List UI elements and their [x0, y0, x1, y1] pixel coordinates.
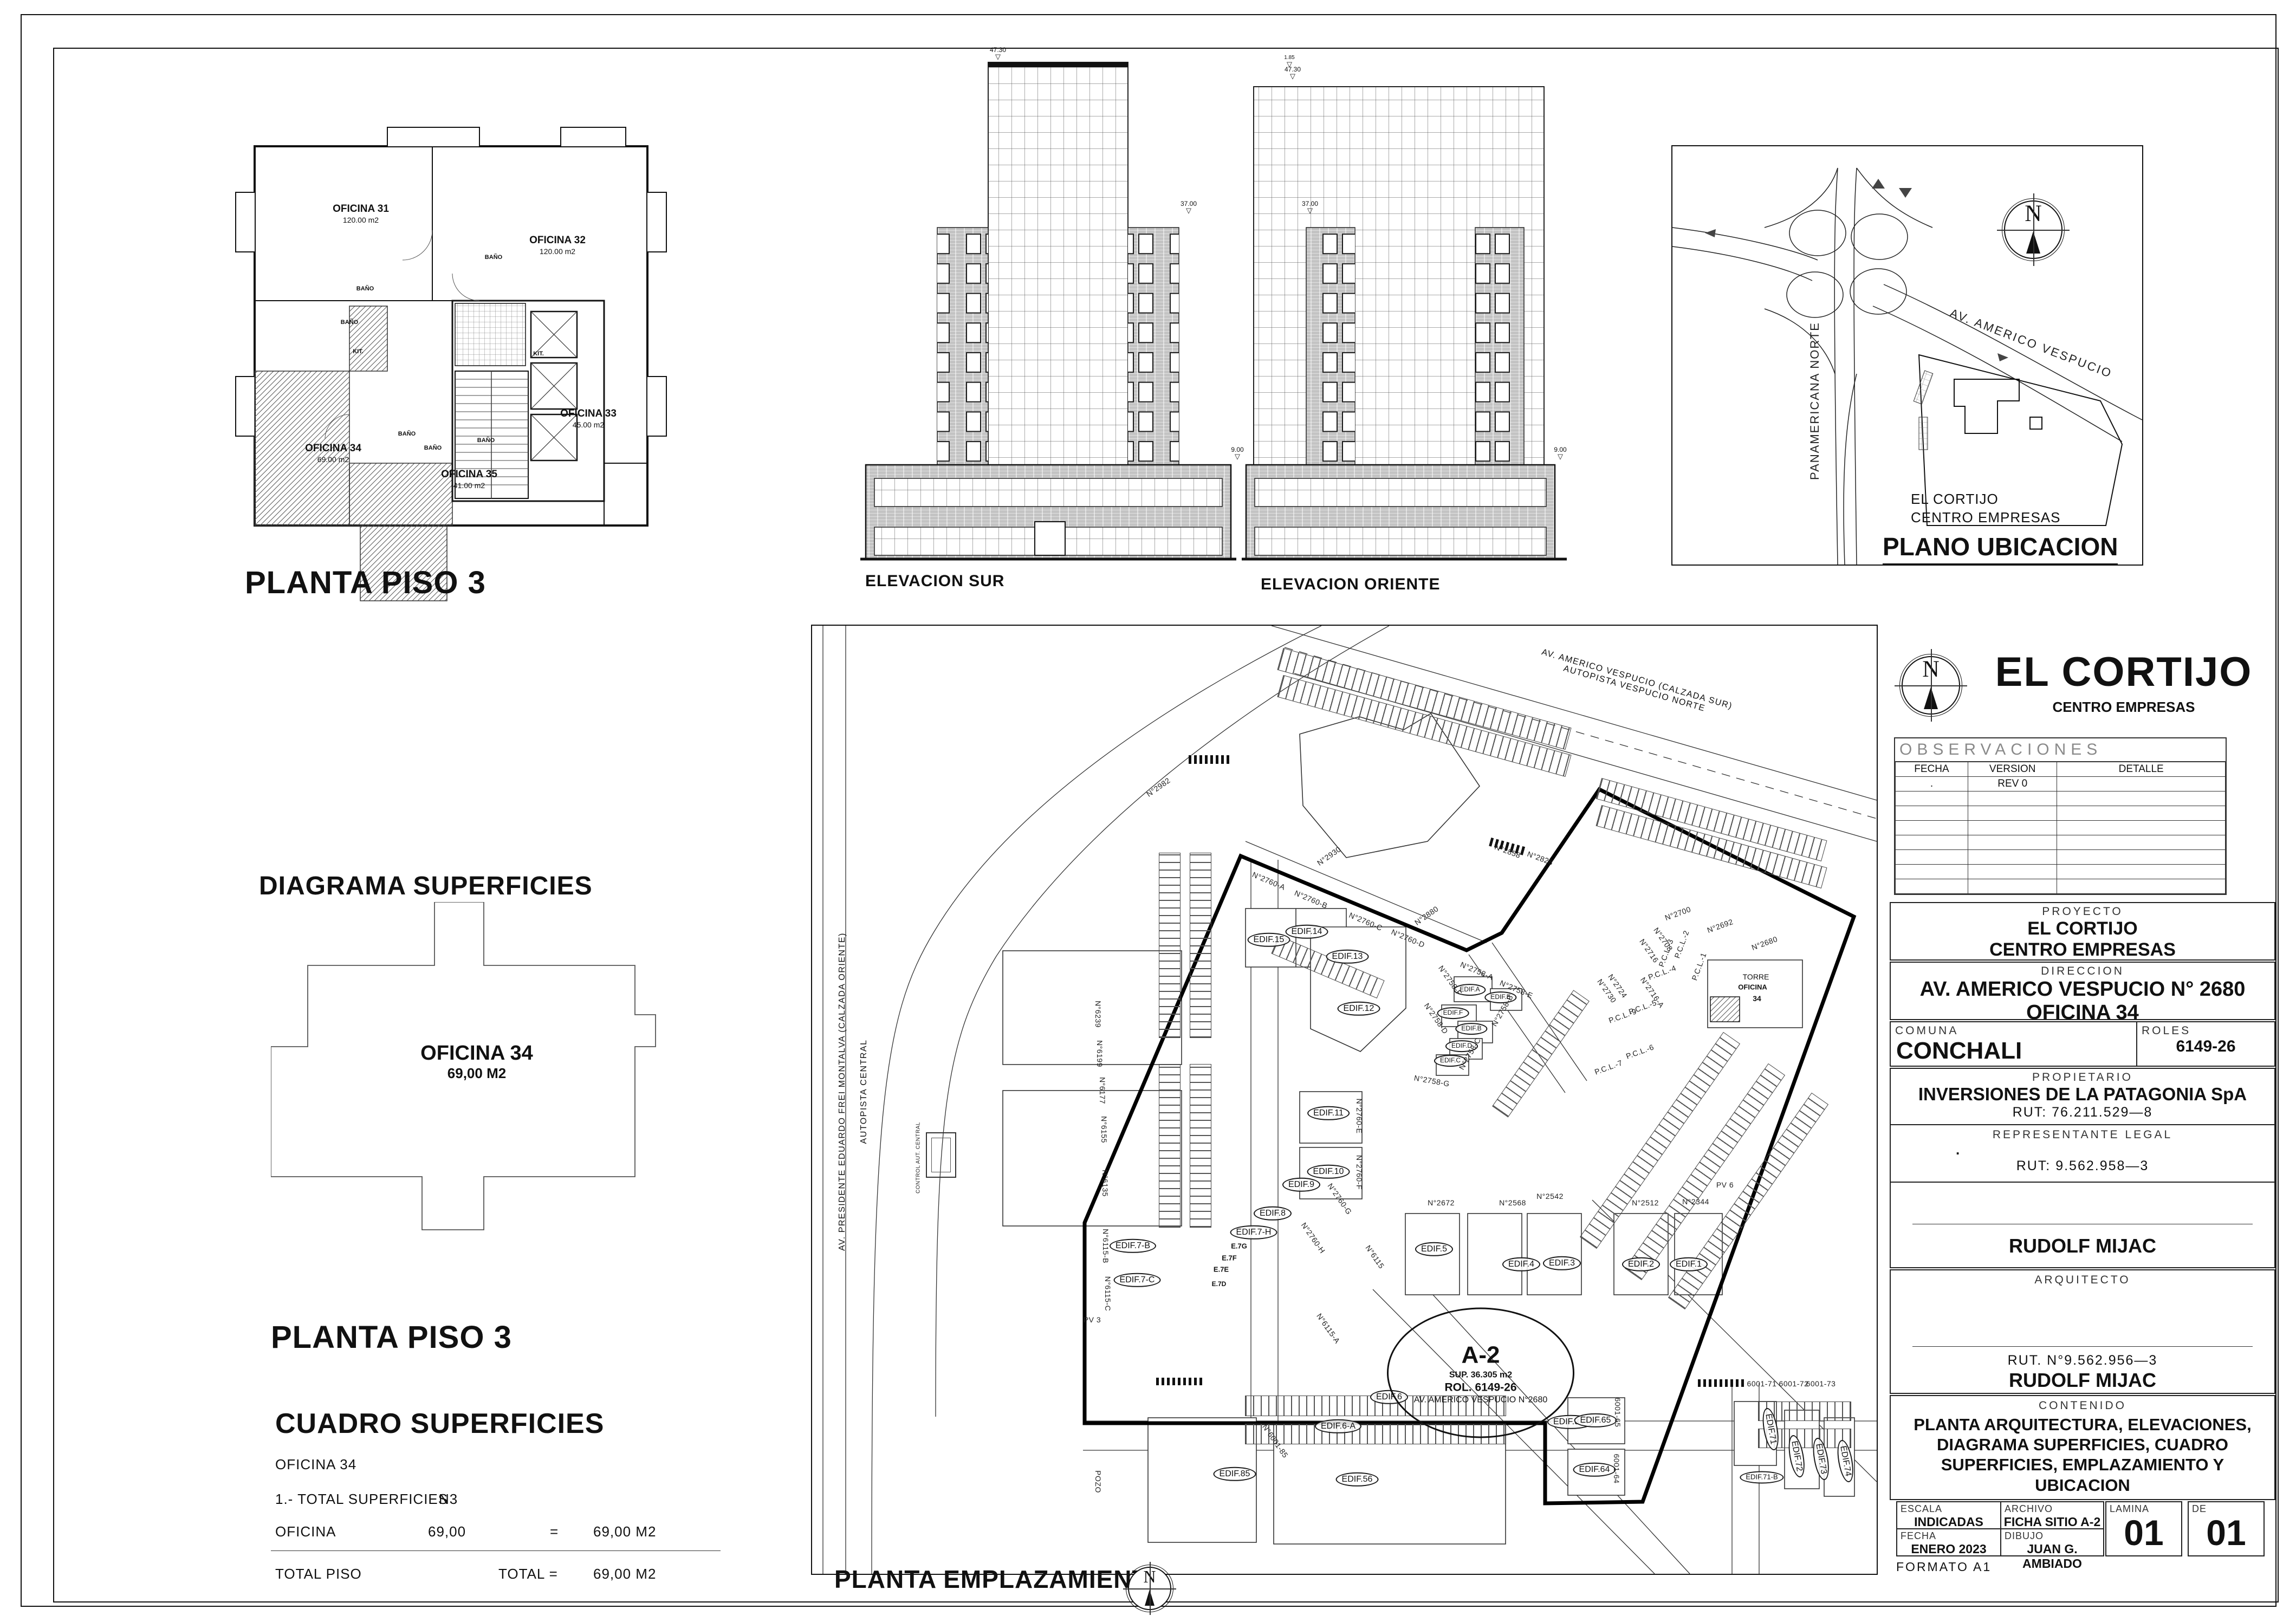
cuadro-title: CUADRO SUPERFICIES: [275, 1407, 604, 1440]
level-mark: 47.30: [990, 47, 1006, 60]
cuadro-row2-value: 69,00: [428, 1523, 466, 1540]
fixture-label: BAÑO: [485, 254, 502, 261]
cuadro-row2-eq: =: [550, 1523, 559, 1540]
dibujo-box: DIBUJO JUAN G. AMBIADO: [2000, 1528, 2104, 1556]
obs-cell: REV 0: [1968, 777, 2057, 791]
street-number: N°2568: [1499, 1198, 1526, 1207]
cuadro-row2-total: 69,00 M2: [593, 1523, 656, 1540]
street-number: POZO: [1094, 1470, 1102, 1493]
cuadro-office: OFICINA 34: [275, 1456, 356, 1473]
obs-col-fecha: FECHA: [1896, 762, 1968, 777]
street-number: 6001-64: [1612, 1454, 1621, 1484]
fixture-label: BAÑO: [424, 445, 442, 451]
street-number: N°2672: [1428, 1198, 1455, 1207]
parcel-a2: A-2 SUP. 36.305 m2 ROL. 6149-26 AV. AMER…: [1387, 1308, 1574, 1438]
street-number: N°6115-B: [1101, 1229, 1110, 1263]
level-mark: 9.00: [1554, 446, 1566, 460]
street-number: 6001-71: [1747, 1379, 1777, 1388]
parking-row: [1698, 1379, 1747, 1387]
street-number: N°2344: [1682, 1197, 1709, 1206]
propietario-box: PROPIETARIO INVERSIONES DE LA PATAGONIA …: [1890, 1068, 2275, 1126]
de-box: DE 01: [2188, 1501, 2265, 1556]
observaciones-header: OBSERVACIONES: [1895, 738, 2226, 762]
edif-label: EDIF.F: [1437, 1007, 1469, 1019]
street-number: N°6115-C: [1104, 1276, 1112, 1312]
fixture-label: KIT.: [533, 351, 544, 357]
obs-col-detalle: DETALLE: [2057, 762, 2226, 777]
parking-row: [1190, 1064, 1211, 1228]
street-number: N°2760-F: [1355, 1155, 1364, 1190]
edif-label: E.7G: [1231, 1243, 1247, 1251]
cuadro-row1-value: N3: [439, 1491, 458, 1508]
level-mark: 37.00: [1181, 200, 1197, 214]
drawing-sheet: OFICINA 31120.00 m2 OFICINA 32120.00 m2 …: [0, 0, 2296, 1622]
street-number: 6001-65: [1613, 1398, 1622, 1428]
edif-label: 34: [1753, 994, 1761, 1003]
comuna-box: COMUNA CONCHALI: [1890, 1021, 2138, 1067]
cuadro-row2-label: OFICINA: [275, 1523, 336, 1540]
proyecto-box: PROYECTO EL CORTIJO CENTRO EMPRESAS: [1890, 902, 2275, 961]
elevation-east-title: ELEVACION ORIENTE: [1261, 575, 1440, 594]
parking-row: [1159, 1064, 1181, 1228]
diagrama-room: OFICINA 34 69,00 M2: [420, 1042, 533, 1082]
lamina-box: LAMINA 01: [2105, 1501, 2182, 1556]
room-label: OFICINA 3345.00 m2: [560, 408, 617, 430]
edif-label: TORRE: [1743, 972, 1769, 981]
ubicacion-site-label: EL CORTIJO CENTRO EMPRESAS: [1911, 490, 2061, 527]
obs-cell: .: [1896, 777, 1968, 791]
street-number: N°6177: [1098, 1077, 1107, 1104]
title-block: N EL CORTIJO CENTRO EMPRESAS OBSERVACION…: [1886, 625, 2276, 1578]
fixture-label: BAÑO: [341, 319, 358, 326]
elevations: 47.3037.009.001.8547.3037.009.00: [856, 51, 1571, 599]
observaciones-table: FECHA VERSION DETALLE . REV 0: [1895, 762, 2226, 894]
street-number: N°2542: [1536, 1192, 1564, 1201]
title-block-compass: N: [1902, 656, 1960, 715]
edif-label: OFICINA: [1738, 984, 1767, 992]
fixture-label: BAÑO: [398, 431, 416, 437]
fecha-box: FECHA ENERO 2023: [1896, 1528, 2001, 1556]
parking-row: [1190, 853, 1211, 1038]
cuadro-total-value: 69,00 M2: [593, 1566, 656, 1582]
arquitecto-box: ARQUITECTO RUT. N°9.562.956—3 RUDOLF MIJ…: [1890, 1269, 2275, 1394]
observaciones: OBSERVACIONES FECHA VERSION DETALLE . RE…: [1894, 737, 2227, 895]
control-box: [926, 1132, 956, 1178]
cuadro-row1-label: 1.- TOTAL SUPERFICIES: [275, 1491, 448, 1508]
rep-signature-box: RUDOLF MIJAC: [1890, 1182, 2275, 1268]
contenido-box: CONTENIDO PLANTA ARQUITECTURA, ELEVACION…: [1890, 1395, 2275, 1500]
edif-label: EDIF.71-B: [1740, 1471, 1783, 1484]
street-left-label-1: AV. PRESIDENTE EDUARDO FREI MONTALVA (CA…: [838, 932, 847, 1251]
street-number: CONTROL AUT. CENTRAL: [916, 1122, 922, 1193]
ubicacion-title: PLANO UBICACION: [1883, 532, 2118, 566]
roles-box: ROLES 6149-26: [2136, 1021, 2275, 1067]
obs-col-version: VERSION: [1968, 762, 2057, 777]
ubicacion-compass: N: [2004, 200, 2062, 259]
street-number: PV 3: [1084, 1315, 1101, 1324]
cuadro-divider: [271, 1550, 721, 1551]
fixture-label: BAÑO: [356, 286, 374, 292]
site-plan: EDIF.15EDIF.14EDIF.13EDIF.12EDIF.11EDIF.…: [811, 625, 1878, 1575]
representante-box: REPRESENTANTE LEGAL . RUT: 9.562.958—3: [1890, 1124, 2275, 1184]
level-mark: 47.30: [1285, 66, 1301, 80]
cuadro-total-label: TOTAL PISO: [275, 1566, 362, 1582]
edif-label: E.7E: [1214, 1266, 1229, 1274]
ubicacion-street-vertical: PANAMERICANA NORTE: [1808, 322, 1822, 480]
elevation-south-title: ELEVACION SUR: [865, 572, 1004, 591]
edif-label: EDIF.11: [1307, 1106, 1350, 1120]
edif-label: E.7D: [1212, 1281, 1227, 1288]
street-number: N°2512: [1632, 1198, 1659, 1207]
street-number: 6001-72: [1779, 1379, 1809, 1388]
street-number: N°2760-E: [1355, 1099, 1364, 1134]
direccion-box: DIRECCION AV. AMERICO VESPUCIO N° 2680 O…: [1890, 962, 2275, 1020]
street-number: PV 6: [1716, 1180, 1734, 1189]
logo: EL CORTIJO CENTRO EMPRESAS: [1973, 648, 2274, 716]
parking-row: [1159, 853, 1181, 1038]
street-number: N°6135: [1101, 1170, 1110, 1197]
room-label: OFICINA 32120.00 m2: [529, 235, 586, 256]
parking-row: [1156, 1378, 1205, 1385]
edif-label: EDIF.B: [1455, 1023, 1487, 1035]
cuadro-total-eq: TOTAL =: [498, 1566, 558, 1582]
room-label: OFICINA 3541.00 m2: [441, 469, 497, 490]
logo-title: EL CORTIJO: [1973, 648, 2274, 696]
fixture-label: BAÑO: [477, 437, 495, 444]
logo-subtitle: CENTRO EMPRESAS: [1973, 699, 2274, 716]
archivo-box: ARCHIVO FICHA SITIO A-2: [2000, 1501, 2104, 1529]
plano-ubicacion: AV. AMERICO VESPUCIO PANAMERICANA NORTE …: [1671, 145, 2143, 566]
site-plan-title: PLANTA EMPLAZAMIENTO: [834, 1565, 1168, 1594]
formato-label: FORMATO A1: [1896, 1560, 1992, 1574]
street-left-label-2: AUTOPISTA CENTRAL: [859, 1040, 869, 1144]
escala-box: ESCALA INDICADAS: [1896, 1501, 2001, 1529]
floor-plan-title: PLANTA PISO 3: [245, 565, 486, 601]
street-number: N°6199: [1095, 1040, 1104, 1067]
level-mark: 37.00: [1302, 200, 1318, 214]
street-number: N°6239: [1094, 1001, 1102, 1028]
street-number: N°6155: [1100, 1116, 1108, 1143]
room-label: OFICINA 31120.00 m2: [333, 203, 389, 225]
street-number: 6001-73: [1806, 1379, 1836, 1388]
edif-label: E.7F: [1222, 1255, 1236, 1263]
diagrama-title: DIAGRAMA SUPERFICIES: [259, 871, 593, 901]
fixture-label: KIT.: [353, 348, 364, 355]
site-plan-compass: N: [1128, 1567, 1171, 1610]
elevation-drawings: [856, 51, 1571, 599]
room-label: OFICINA 3469.00 m2: [305, 443, 361, 464]
diagrama-superficies: OFICINA 34 69,00 M2: [271, 902, 680, 1254]
parking-row: [1189, 755, 1232, 764]
diagrama-subtitle: PLANTA PISO 3: [271, 1319, 512, 1355]
level-mark: 9.00: [1231, 446, 1243, 460]
obs-cell: [2057, 777, 2226, 791]
